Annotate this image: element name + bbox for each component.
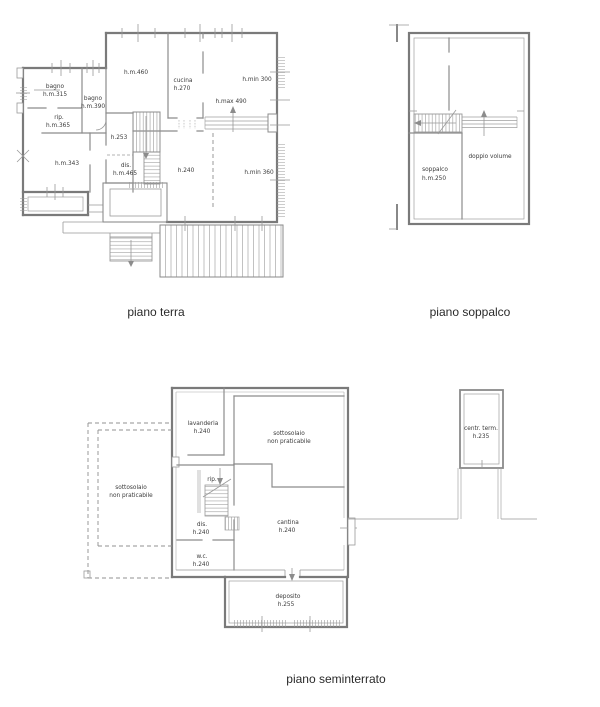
label-hmin300: h.min 300 — [242, 77, 272, 83]
label-wc-height: h.240 — [193, 562, 210, 568]
label-cucina-height: h.270 — [174, 86, 191, 92]
label-cucina: cucina — [174, 78, 193, 84]
label-bagno-2: bagno — [84, 96, 103, 102]
label-cantina-height: h.240 — [279, 528, 296, 534]
label-bagno-1: bagno — [46, 84, 65, 90]
seminterrato-exterior-walls — [172, 388, 348, 577]
label-lavanderia: lavanderia — [188, 421, 219, 427]
label-wc: w.c. — [196, 554, 207, 560]
label-doppio-volume: doppio volume — [468, 154, 511, 160]
label-bagno-1-height: h.m.315 — [43, 92, 67, 98]
label-sottosolaio-left: sottosolaio — [115, 485, 147, 491]
soppalco-staircase — [414, 110, 462, 134]
floor-plan-drawing: bagno h.m.315 bagno h.m.390 rip. h.m.365… — [0, 0, 600, 707]
label-h253: h.253 — [111, 135, 128, 141]
terra-exterior-stair — [63, 222, 160, 267]
label-centrale-termica-height: h.235 — [473, 434, 490, 440]
label-dis-seminterrato: dis. — [197, 522, 207, 528]
label-room-460: h.m.460 — [124, 70, 148, 76]
label-deposito: deposito — [276, 594, 301, 600]
plan-piano-terra: bagno h.m.315 bagno h.m.390 rip. h.m.365… — [16, 24, 290, 319]
seminterrato-room-labels: lavanderia h.240 sottosolaio non pratica… — [109, 421, 498, 608]
plan-title-terra: piano terra — [127, 305, 185, 319]
label-rip: rip. — [54, 115, 64, 121]
plan-title-soppalco: piano soppalco — [430, 305, 511, 319]
plan-title-seminterrato: piano seminterrato — [286, 672, 386, 686]
plan-piano-soppalco: soppalco h.m.250 doppio volume piano sop… — [389, 24, 529, 319]
label-sottosolaio-top-2: non praticabile — [267, 439, 311, 445]
label-dis: dis. — [121, 163, 131, 169]
label-dis-height: h.m.465 — [113, 171, 137, 177]
label-cantina: cantina — [277, 520, 299, 526]
label-lavanderia-height: h.240 — [194, 429, 211, 435]
label-sottosolaio-top: sottosolaio — [273, 431, 305, 437]
label-centrale-termica: centr. term. — [464, 426, 498, 432]
label-rip-height: h.m.365 — [46, 123, 70, 129]
soppalco-room-labels: soppalco h.m.250 doppio volume — [422, 154, 512, 182]
label-soppalco-height: h.m.250 — [422, 176, 446, 182]
terra-deck-terrace — [160, 216, 283, 277]
floor-plan-sheet: bagno h.m.315 bagno h.m.390 rip. h.m.365… — [0, 0, 600, 707]
plan-piano-seminterrato: lavanderia h.240 sottosolaio non pratica… — [84, 388, 537, 686]
label-soppalco: soppalco — [422, 167, 448, 173]
label-rip-seminterrato: rip. — [207, 477, 217, 483]
label-h240: h.240 — [178, 168, 195, 174]
terra-staircase — [133, 112, 160, 184]
label-dis-seminterrato-height: h.240 — [193, 530, 210, 536]
seminterrato-cantina-door — [289, 568, 295, 581]
label-hmin360: h.min 360 — [244, 170, 274, 176]
label-sottosolaio-left-2: non praticabile — [109, 493, 153, 499]
label-room-343: h.m.343 — [55, 161, 79, 167]
label-hmax490: h.max 490 — [215, 99, 246, 105]
label-bagno-2-height: h.m.390 — [81, 104, 105, 110]
terra-balcony-railing — [205, 106, 277, 132]
seminterrato-dashed-crawlspace — [84, 423, 172, 578]
label-deposito-height: h.255 — [278, 602, 295, 608]
soppalco-railing — [462, 110, 517, 136]
seminterrato-centrale-termica — [348, 390, 537, 519]
seminterrato-staircase — [198, 468, 239, 530]
